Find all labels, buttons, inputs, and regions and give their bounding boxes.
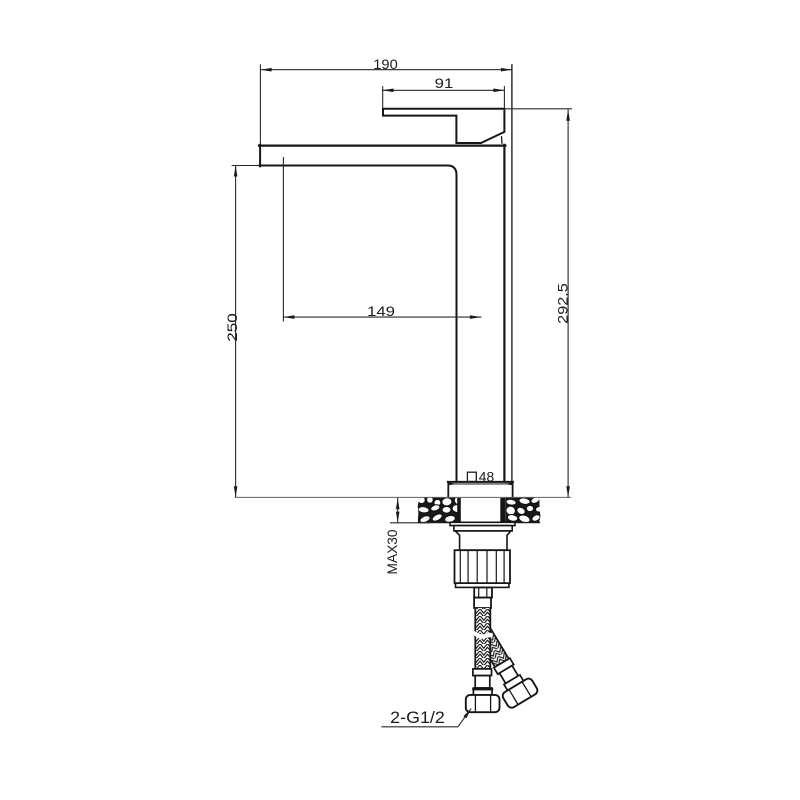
svg-text:149: 149 [367,304,395,319]
svg-text:250: 250 [225,313,240,342]
svg-text:91: 91 [435,76,454,91]
svg-text:190: 190 [373,57,398,72]
svg-text:292.5: 292.5 [556,283,571,324]
svg-text:2-G1/2: 2-G1/2 [390,708,445,727]
svg-text:MAX30: MAX30 [385,530,400,575]
svg-text:48: 48 [479,470,494,485]
